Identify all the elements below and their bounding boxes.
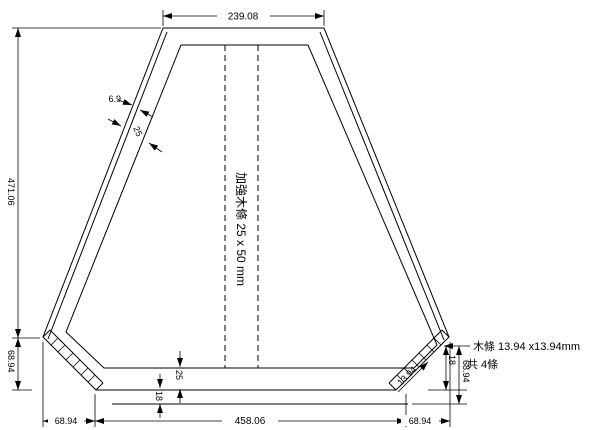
dim-left-height-chain: 471.06 68.94 xyxy=(6,28,161,390)
dim-bottom-member-label: 25 xyxy=(174,370,184,380)
cad-drawing-page: 加強木條 25 x 50 mm 239.08 471.06 68.94 68.9… xyxy=(0,0,602,430)
dim-bottom-width-label: 458.06 xyxy=(235,416,266,427)
dim-skin-thickness-label: 6.9 xyxy=(108,94,121,104)
dim-skin-thickness: 6.9 xyxy=(108,94,153,117)
dim-bottom-chain: 68.94 458.06 68.94 xyxy=(43,342,450,427)
dim-bottom-right-chamfer-label: 68.94 xyxy=(409,416,432,426)
dim-bottom-member: 25 xyxy=(174,351,184,403)
dim-bottom-offset: 18 xyxy=(154,374,164,418)
center-strip-note: 加強木條 25 x 50 mm xyxy=(234,172,248,286)
wood-strip-note-line1: 木條 13.94 x13.94mm xyxy=(473,339,580,353)
dim-top-width: 239.08 xyxy=(163,10,324,26)
dim-slant-member: 25 xyxy=(108,119,162,152)
hatch-ticks-left xyxy=(51,338,95,382)
kite-frame-technical-drawing: 加強木條 25 x 50 mm 239.08 471.06 68.94 68.9… xyxy=(0,0,602,430)
center-reinforcement-strip: 加強木條 25 x 50 mm xyxy=(225,45,258,368)
wood-strip-note-line2: 共 4條 xyxy=(467,357,498,371)
dim-slant-member-label: 25 xyxy=(131,125,144,138)
dim-bottom-offset-label: 18 xyxy=(154,391,164,401)
skin-inner-line-left xyxy=(48,32,167,339)
inner-frame-hexagon xyxy=(66,45,437,368)
skin-inner-line-right xyxy=(320,32,444,340)
dim-strip-diagonal: 13.94 xyxy=(395,362,428,392)
dim-total-height-label: 471.06 xyxy=(6,178,16,206)
dim-left-chamfer-height-label: 68.94 xyxy=(6,350,16,373)
dim-bottom-left-chamfer-label: 68.94 xyxy=(55,416,78,426)
dim-top-width-label: 239.08 xyxy=(228,12,259,23)
dim-right-offset-label: 18 xyxy=(447,355,457,365)
